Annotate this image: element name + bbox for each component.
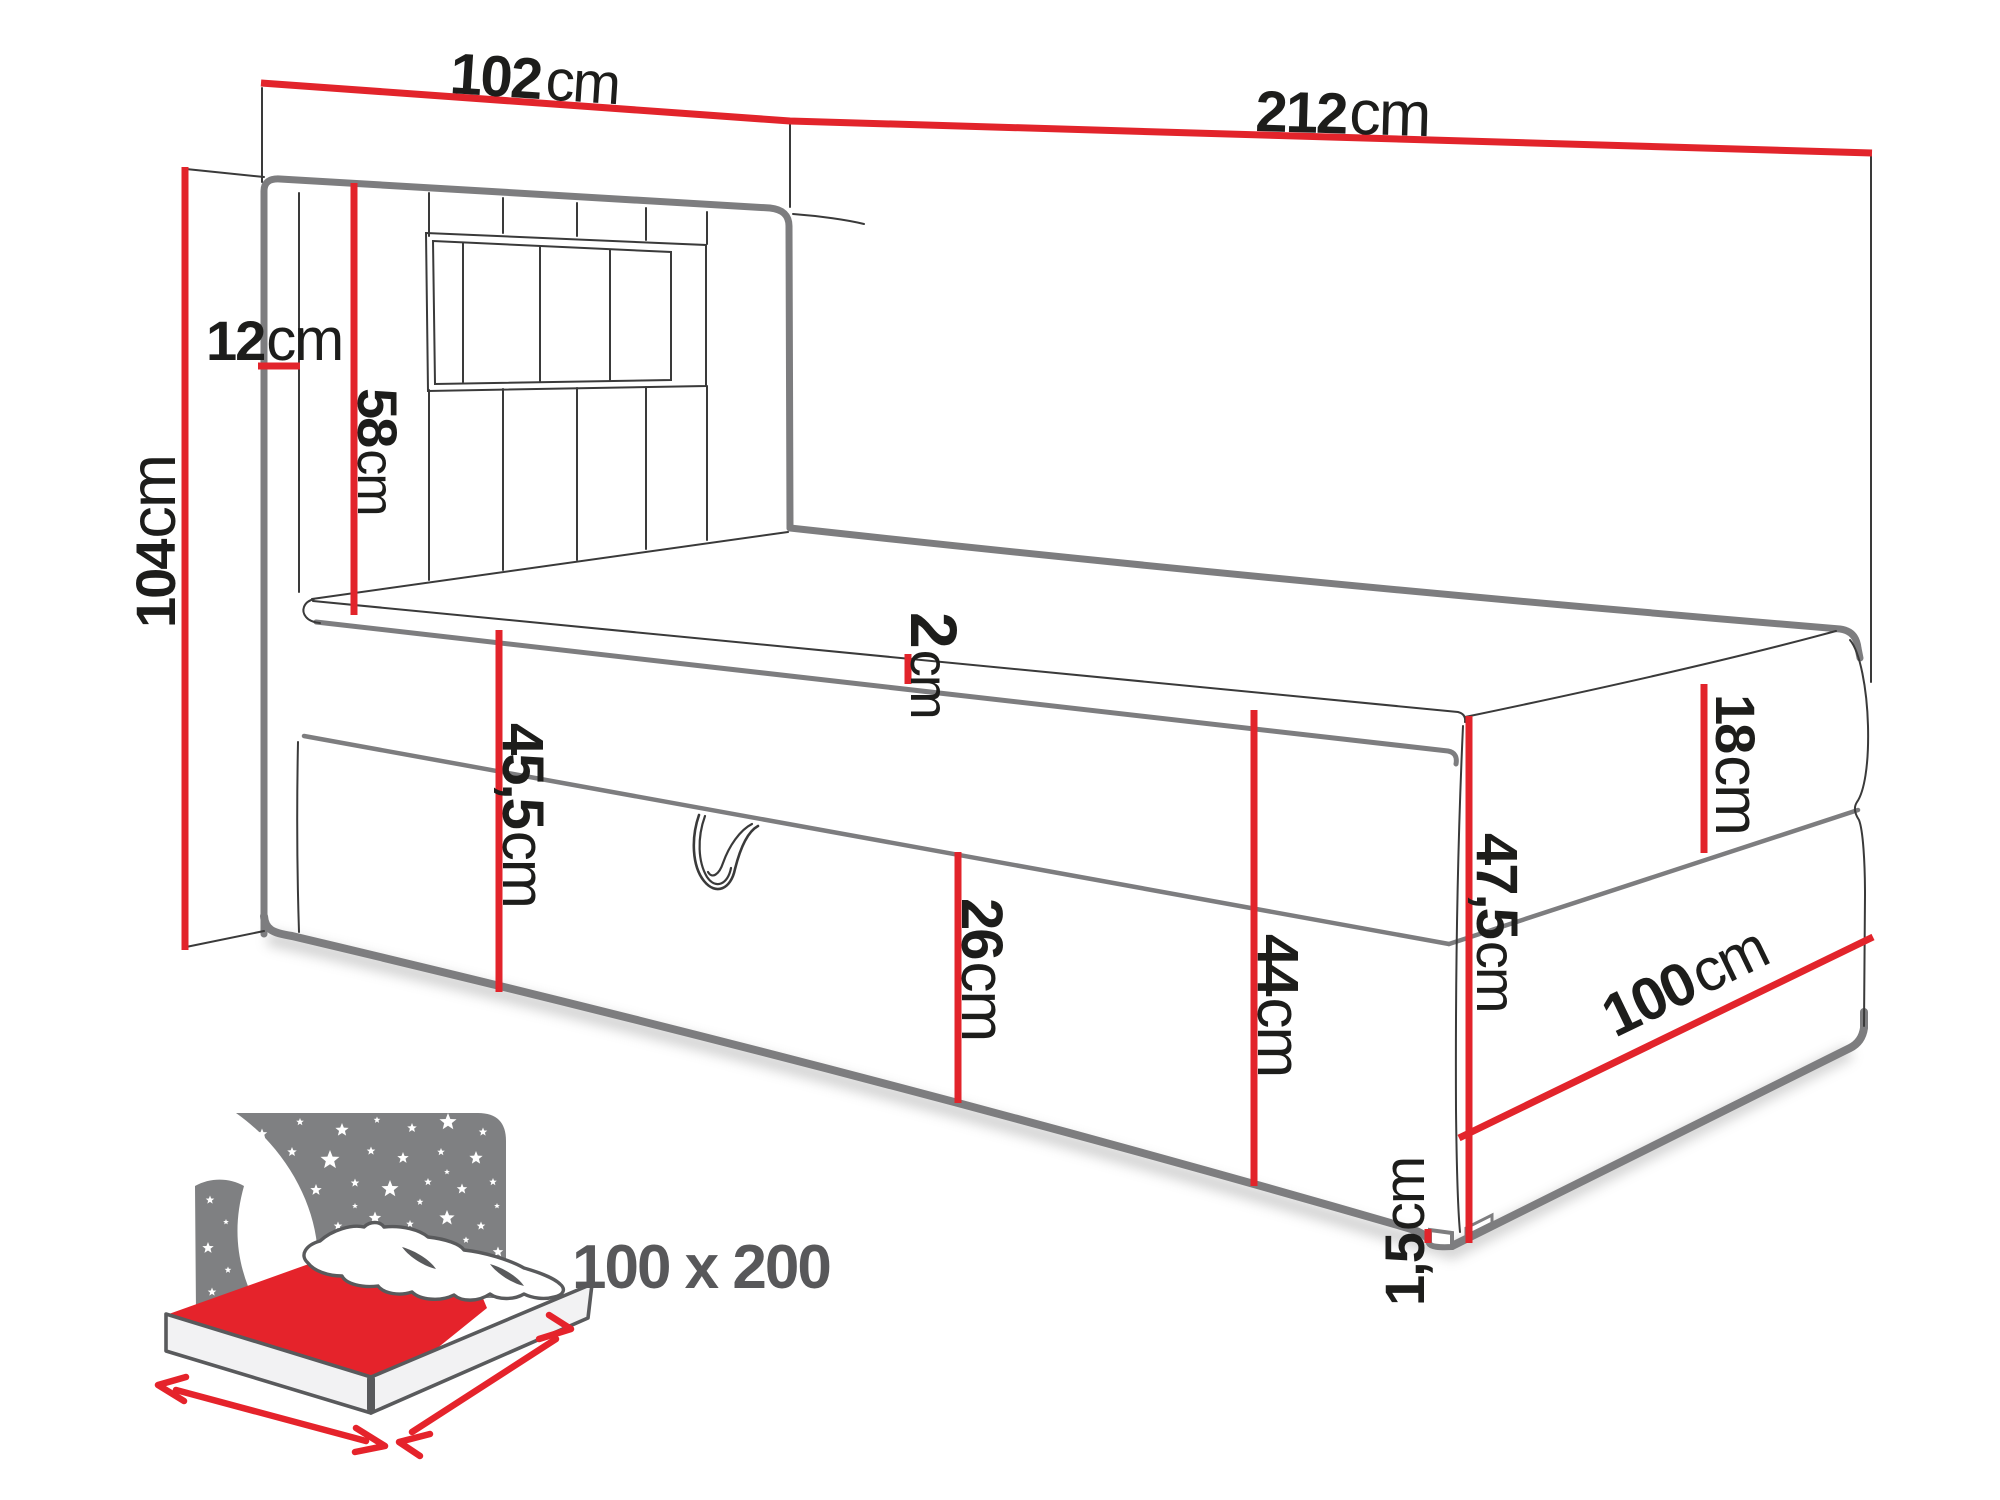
svg-text:1,5cm: 1,5cm (1372, 1158, 1437, 1306)
svg-text:58cm: 58cm (346, 388, 409, 515)
svg-text:104cm: 104cm (116, 456, 189, 628)
svg-text:44cm: 44cm (1244, 934, 1313, 1076)
svg-text:100 x 200: 100 x 200 (572, 1233, 830, 1302)
svg-text:12cm: 12cm (206, 306, 342, 373)
svg-text:2cm: 2cm (897, 612, 971, 718)
svg-text:47,5cm: 47,5cm (1464, 833, 1529, 1012)
svg-text:212cm: 212cm (1255, 75, 1431, 150)
svg-text:18cm: 18cm (1702, 694, 1771, 834)
svg-text:26cm: 26cm (948, 898, 1017, 1040)
svg-text:45,5cm: 45,5cm (490, 723, 557, 907)
svg-text:102cm: 102cm (448, 41, 621, 117)
